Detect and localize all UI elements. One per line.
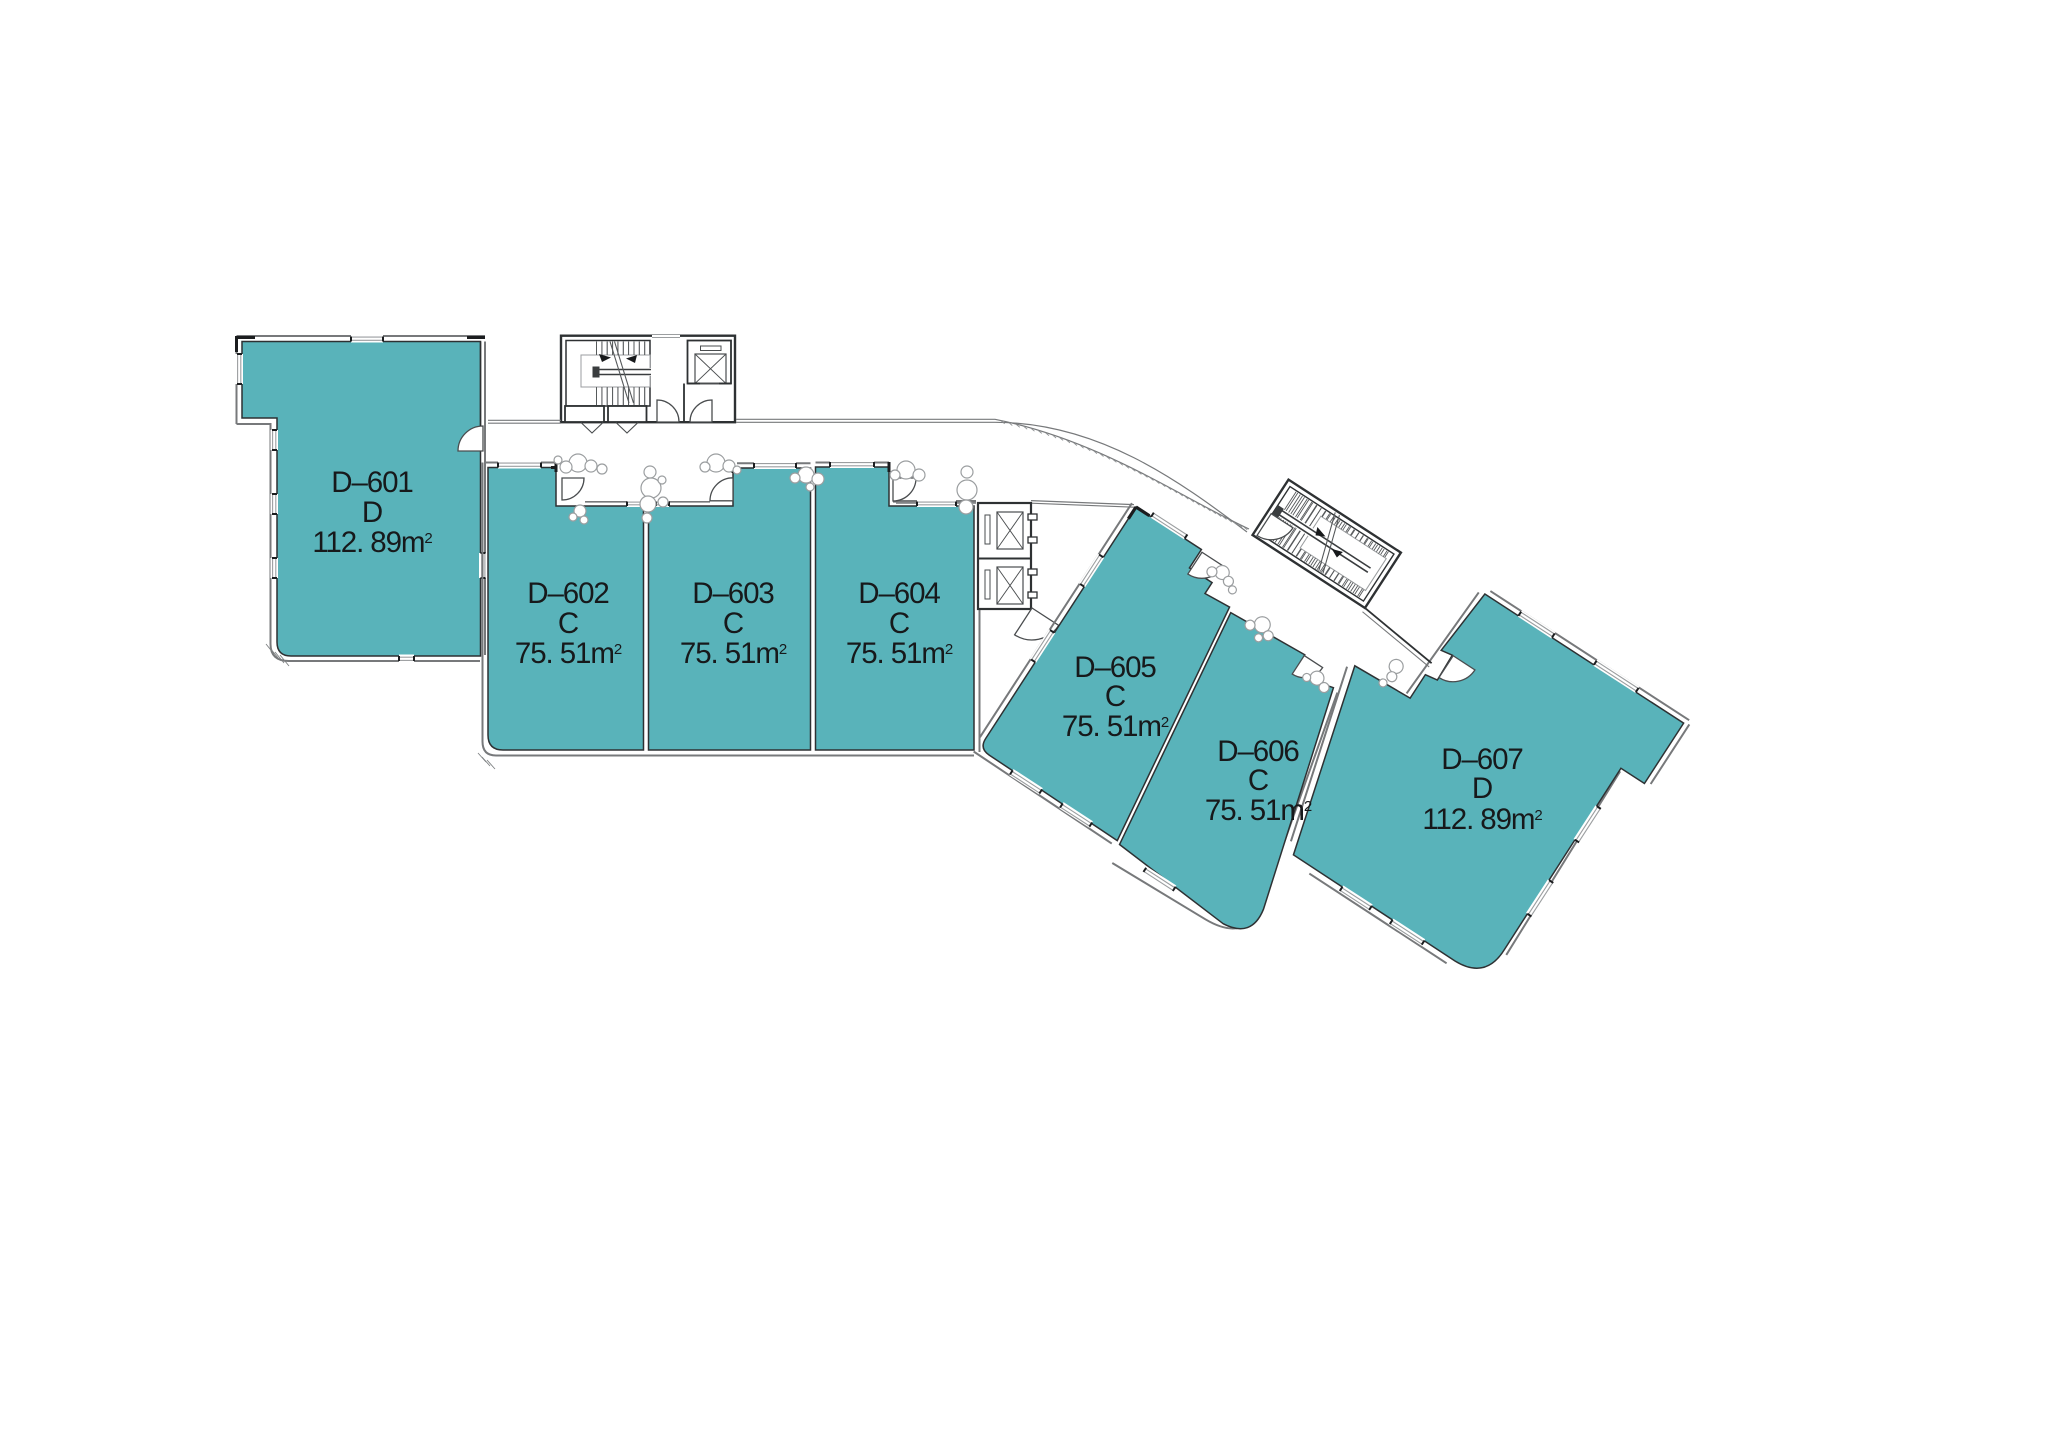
svg-text:112. 89m2: 112. 89m2 [1422,803,1542,836]
svg-text:C: C [558,607,579,640]
svg-text:D–602: D–602 [527,577,608,610]
svg-text:75. 51m2: 75. 51m2 [1205,794,1312,827]
svg-text:D–604: D–604 [858,577,940,610]
svg-text:C: C [723,607,744,640]
svg-text:D: D [1472,772,1492,805]
svg-text:D: D [362,496,382,529]
svg-text:75. 51m2: 75. 51m2 [680,637,787,670]
svg-text:112. 89m2: 112. 89m2 [312,526,432,559]
svg-text:D–603: D–603 [692,577,774,610]
svg-text:75. 51m2: 75. 51m2 [846,637,953,670]
svg-text:C: C [1105,680,1126,713]
svg-text:75. 51m2: 75. 51m2 [1062,710,1169,743]
svg-text:C: C [889,607,910,640]
svg-text:75. 51m2: 75. 51m2 [515,637,622,670]
svg-text:D–601: D–601 [331,466,412,499]
svg-text:C: C [1248,764,1269,797]
